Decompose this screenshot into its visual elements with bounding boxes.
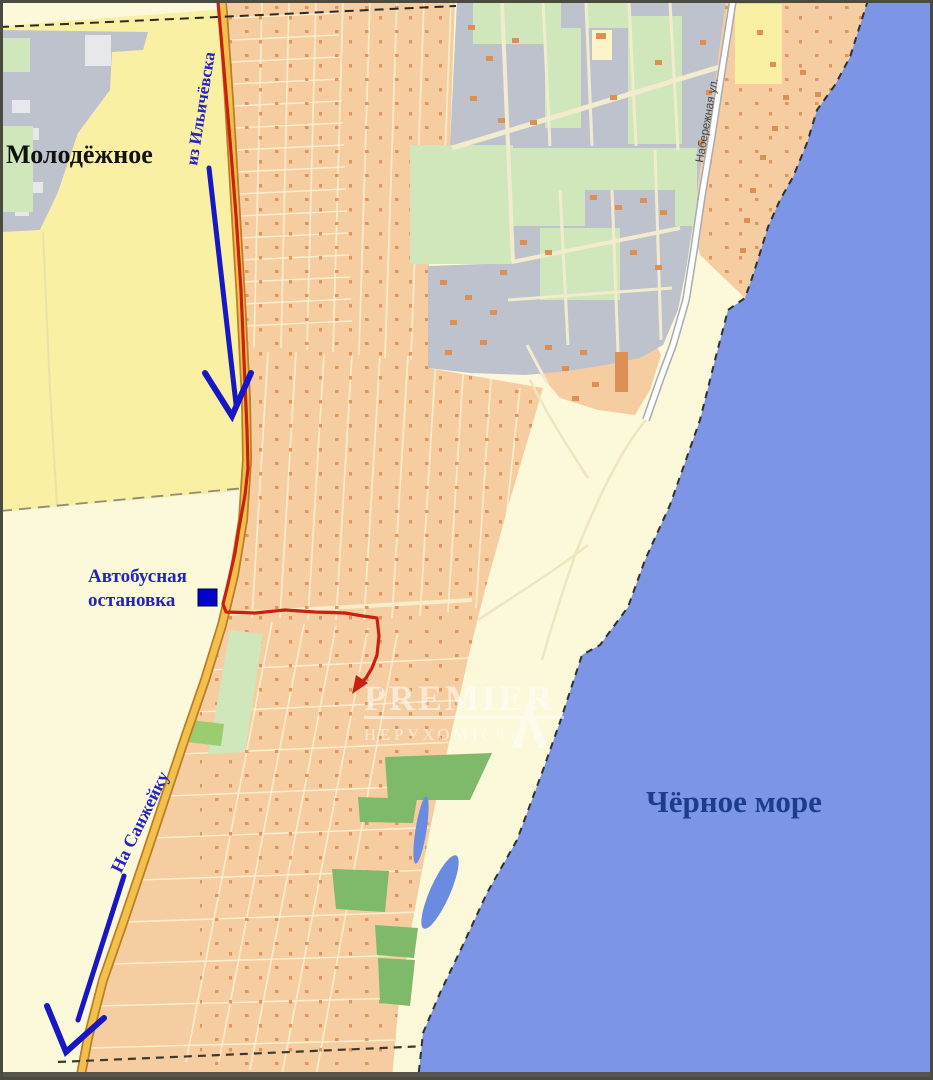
settlement-label: Молодёжное	[6, 140, 153, 169]
coastal-yellow-parcel	[735, 4, 782, 84]
gray-block-inner	[585, 190, 675, 228]
bus-stop-marker	[198, 589, 217, 606]
map-canvas: Молодёжное из Ильичёвска На Санжейку Авт…	[0, 0, 933, 1080]
bus-stop-label-line2: остановка	[88, 590, 176, 611]
map-image: Молодёжное из Ильичёвска На Санжейку Авт…	[0, 0, 933, 1080]
bus-stop-label-line1: Автобусная	[88, 566, 187, 587]
sea-label: Чёрное море	[646, 784, 822, 819]
watermark-subtitle: НЕРУХОМІСТЬ	[364, 725, 524, 744]
